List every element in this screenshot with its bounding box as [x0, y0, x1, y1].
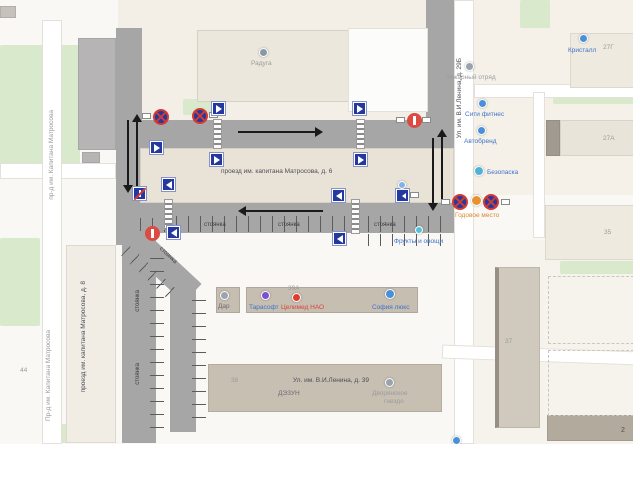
- dar-poi-icon[interactable]: [220, 291, 229, 300]
- sign-plate: [441, 199, 450, 205]
- parcel-outline: [548, 276, 634, 344]
- celimed-poi-icon[interactable]: [292, 293, 301, 302]
- building: [82, 152, 100, 163]
- bezopaska-poi-icon[interactable]: [474, 166, 484, 176]
- building-8-label: проезд им. капитана Матросова, д. 8: [80, 281, 87, 392]
- no-stopping-sign: [483, 194, 499, 210]
- direction-arrow-south: [432, 138, 434, 204]
- building: [0, 6, 16, 18]
- sign-plate: [501, 199, 510, 205]
- house-number: 39А: [288, 285, 300, 292]
- dvoryanskoe-label-1: Дворянское: [372, 390, 407, 397]
- pedestrian-crossing-sign: [353, 102, 366, 115]
- parking-label: стоянка: [135, 363, 142, 385]
- dvoryanskoe-poi-icon[interactable]: [385, 378, 394, 387]
- building-37: [495, 267, 540, 428]
- building-27a-dark: [546, 120, 560, 156]
- no-stopping-sign: [153, 109, 169, 125]
- sofia-poi-icon[interactable]: [385, 289, 395, 299]
- tarasoft-poi-icon[interactable]: [261, 291, 270, 300]
- crosswalk: [351, 199, 360, 234]
- lamp-poi-icon[interactable]: [398, 181, 406, 189]
- no-stopping-sign: [192, 108, 208, 124]
- road-top: [116, 120, 454, 148]
- pedestrian-crossing-sign: [212, 102, 225, 115]
- parking-label: стоянка: [374, 222, 396, 229]
- parcel-outline: [548, 350, 634, 416]
- street-matrosova-label-bottom: Пр-д им. Капитана Матросова: [45, 330, 52, 421]
- dvoryanskoe-label-2: гнездо: [384, 398, 404, 405]
- street-matrosova-label-top: пр-д им. Капитана Матросова: [48, 110, 55, 200]
- celimed-label: Целимед НАО: [281, 304, 324, 311]
- one-way-end-sign: [133, 187, 146, 200]
- bezopaska-label: Безопаска: [487, 169, 518, 176]
- direction-arrow-north: [136, 121, 138, 187]
- house-number: 44: [20, 367, 27, 374]
- house-number: 37: [505, 338, 512, 345]
- pedestrian-crossing-sign: [332, 189, 345, 202]
- no-entry-sign: [145, 226, 160, 241]
- fire-station-label: пожарный отряд: [446, 74, 496, 81]
- house-number: 27Г: [603, 44, 614, 51]
- building-lenina-39: [208, 364, 442, 412]
- sofia-label: София люкс: [372, 304, 409, 311]
- house-number: 27А: [603, 135, 615, 142]
- tarasoft-label: Тарасофт: [249, 304, 279, 311]
- building-raduga: [197, 30, 353, 102]
- dezun-label: ДЭЗУН: [278, 390, 300, 397]
- sign-plate: [142, 113, 151, 119]
- green-area: [0, 238, 40, 326]
- house-number: 2: [621, 427, 625, 435]
- avtobrend-label: Автобренд: [464, 138, 497, 145]
- building-white: [348, 28, 428, 112]
- raduga-label: Радуга: [251, 60, 272, 67]
- street: [533, 92, 545, 238]
- crosswalk: [356, 119, 365, 149]
- pedestrian-crossing-sign: [210, 153, 223, 166]
- page-margin: [633, 0, 640, 480]
- dar-label: Дар: [218, 303, 230, 310]
- city-fitness-poi-icon[interactable]: [478, 99, 487, 108]
- page-margin: [0, 444, 640, 480]
- fruits-label: Фрукты и овощи: [394, 238, 443, 245]
- sign-plate: [422, 117, 431, 123]
- green-area: [520, 0, 550, 28]
- direction-arrow-north: [441, 136, 443, 202]
- building-6-label: проезд им. капитана Матросова, д. 6: [221, 168, 332, 175]
- fruits-poi-icon[interactable]: [415, 226, 423, 234]
- street-lenina-29-label: Ул. им. В.И.Ленина, д. 29Б: [456, 58, 463, 138]
- city-fitness-label: Сити фитнес: [465, 111, 504, 118]
- pedestrian-crossing-sign: [354, 153, 367, 166]
- building-35: [545, 205, 640, 260]
- one-way-left-sign: [396, 189, 409, 202]
- pedestrian-crossing-sign: [167, 226, 180, 239]
- pedestrian-crossing-sign: [333, 232, 346, 245]
- parking-label: стоянка: [135, 290, 142, 312]
- godovoe-mesto-label: Годовое место: [455, 212, 499, 219]
- map-canvas[interactable]: проезд им. капитана Матросова, д. 6 прое…: [0, 0, 640, 480]
- parking-label: стоянка: [278, 222, 300, 229]
- kristall-poi-icon[interactable]: [579, 34, 588, 43]
- sign-plate: [410, 192, 419, 198]
- fire-station-poi-icon[interactable]: [465, 62, 474, 71]
- kristall-label: Кристалл: [568, 47, 596, 54]
- pedestrian-crossing-sign: [150, 141, 163, 154]
- parking-label: стоянка: [204, 222, 226, 229]
- crosswalk: [213, 119, 222, 149]
- building-matrosova-8: [66, 245, 116, 443]
- direction-arrow-south: [127, 120, 129, 186]
- raduga-poi-icon[interactable]: [259, 48, 268, 57]
- house-number: 35: [604, 229, 611, 236]
- street-lenina-39-label: Ул. им. В.И.Ленина, д. 39: [293, 377, 369, 384]
- green-area: [0, 45, 80, 167]
- pedestrian-crossing-sign: [162, 178, 175, 191]
- poi-marker-icon[interactable]: [471, 195, 482, 206]
- house-number: 38: [231, 377, 238, 384]
- avtobrend-poi-icon[interactable]: [477, 126, 486, 135]
- no-entry-sign: [407, 113, 422, 128]
- green-area: [560, 261, 640, 274]
- no-stopping-sign: [452, 194, 468, 210]
- direction-arrow-west: [245, 210, 323, 212]
- building-grey-tall: [78, 38, 116, 150]
- direction-arrow-east: [238, 131, 316, 133]
- building-27a: [560, 120, 640, 156]
- sign-plate: [396, 117, 405, 123]
- parking-ticks: [192, 300, 206, 424]
